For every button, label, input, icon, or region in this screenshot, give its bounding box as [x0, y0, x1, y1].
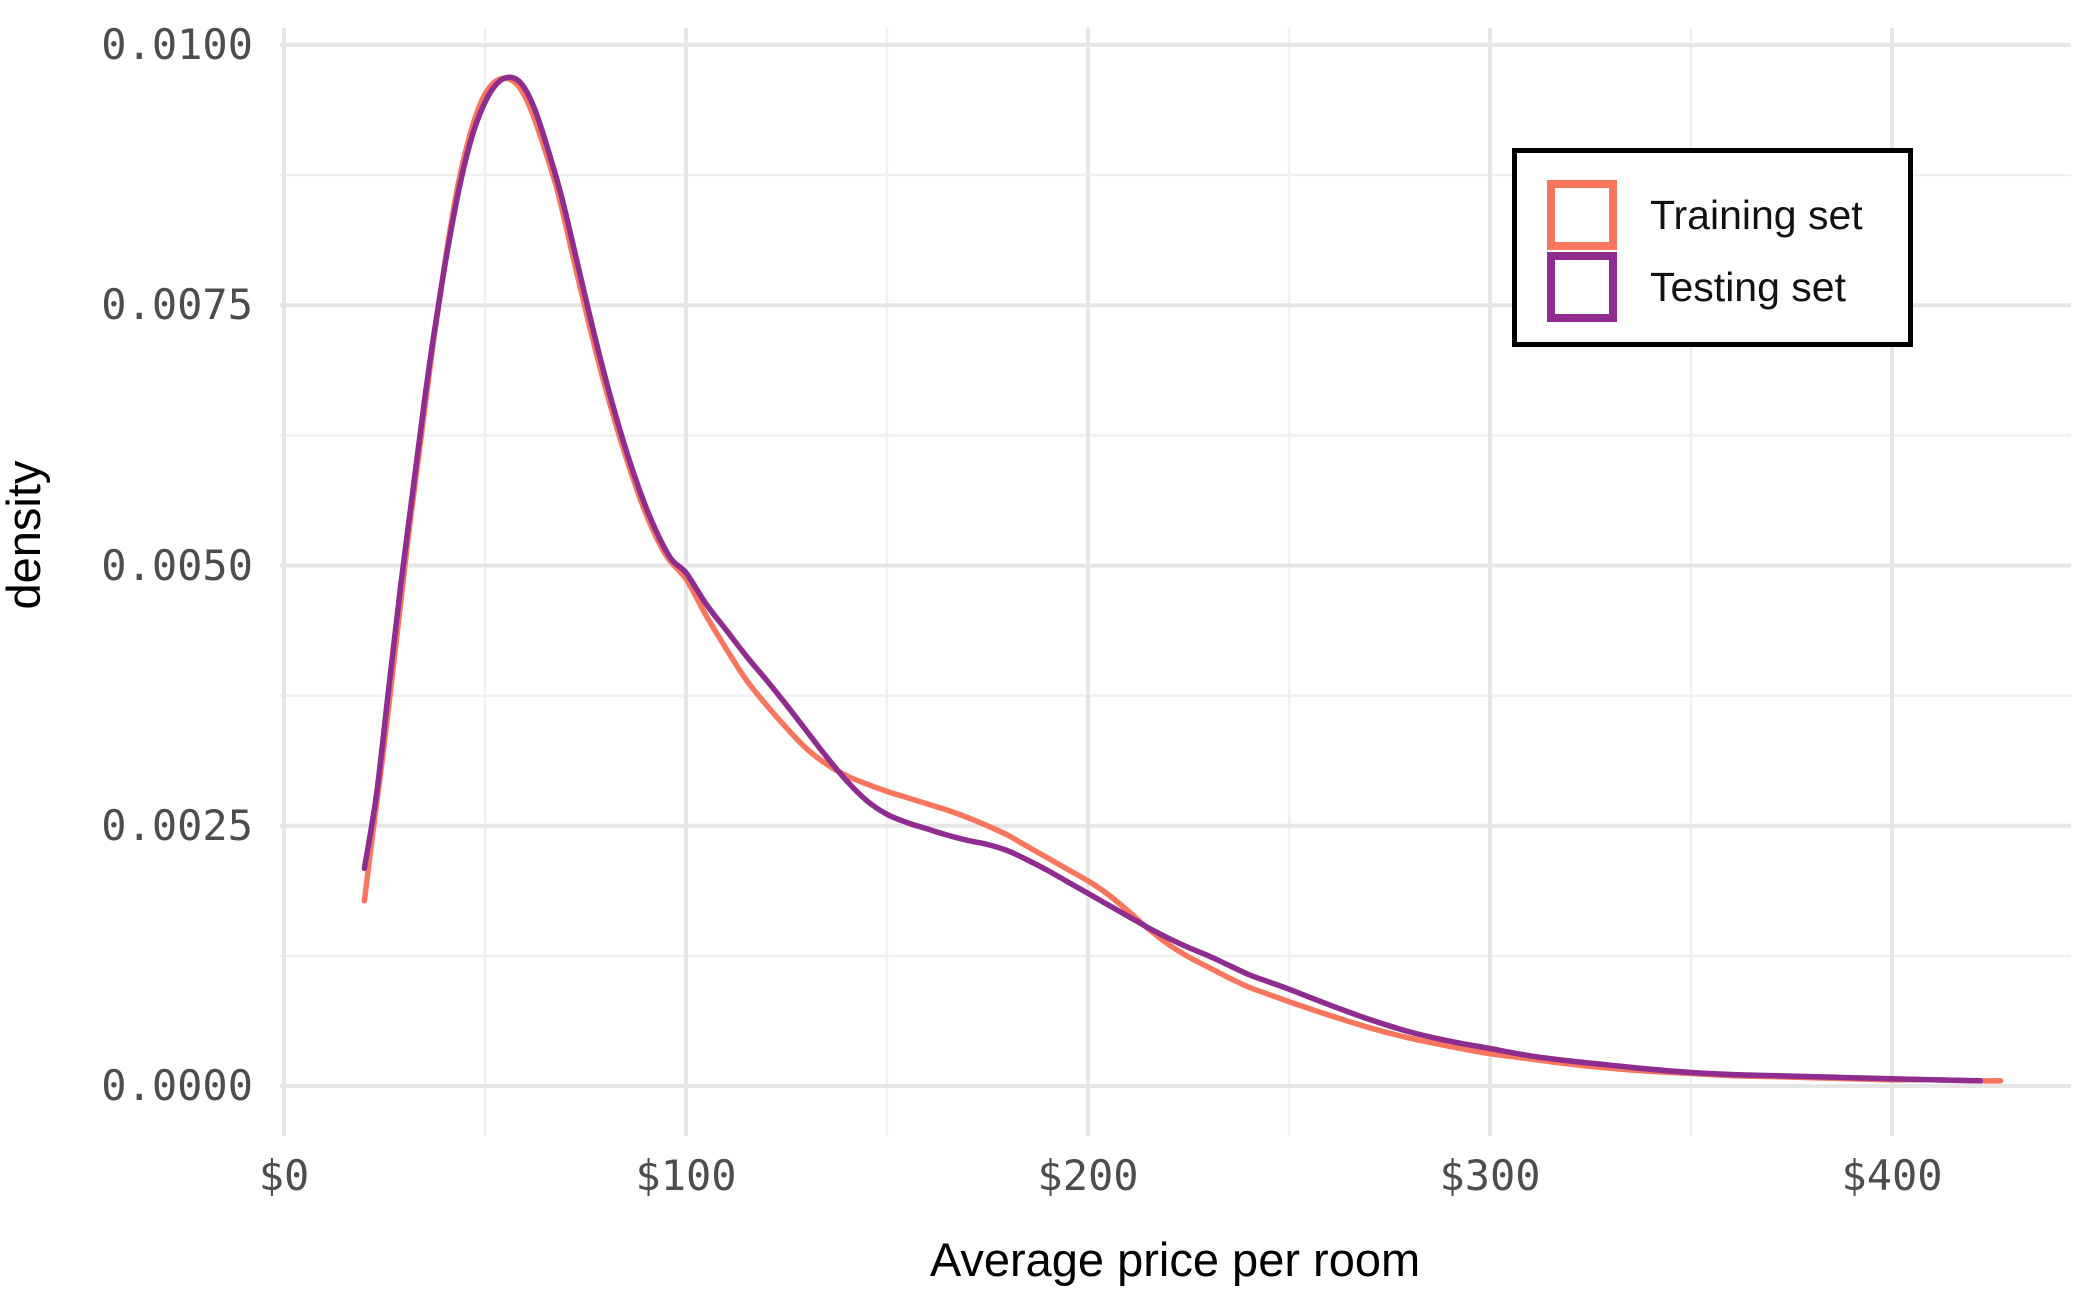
y-tick-label: 0.0100	[0, 23, 253, 67]
legend: Training set Testing set	[1512, 148, 1913, 347]
legend-entry-testing: Testing set	[1547, 252, 1908, 322]
x-tick-label: $0	[164, 1154, 404, 1198]
y-tick-label: 0.0025	[0, 804, 253, 848]
y-axis-title: density	[0, 461, 51, 610]
legend-label-training: Training set	[1650, 180, 1863, 250]
y-tick-label: 0.0000	[0, 1064, 253, 1108]
x-axis-title: Average price per room	[175, 1232, 2100, 1287]
legend-label-testing: Testing set	[1650, 252, 1846, 322]
legend-entry-training: Training set	[1547, 180, 1908, 250]
density-plot-figure: 0.00000.00250.00500.00750.0100$0$100$200…	[0, 0, 2100, 1297]
y-tick-label: 0.0075	[0, 283, 253, 327]
x-tick-label: $100	[566, 1154, 806, 1198]
training-set-key-icon	[1547, 180, 1617, 250]
testing-set-key-icon	[1547, 252, 1617, 322]
x-tick-label: $400	[1772, 1154, 2012, 1198]
x-tick-label: $200	[968, 1154, 1208, 1198]
x-tick-label: $300	[1370, 1154, 1610, 1198]
